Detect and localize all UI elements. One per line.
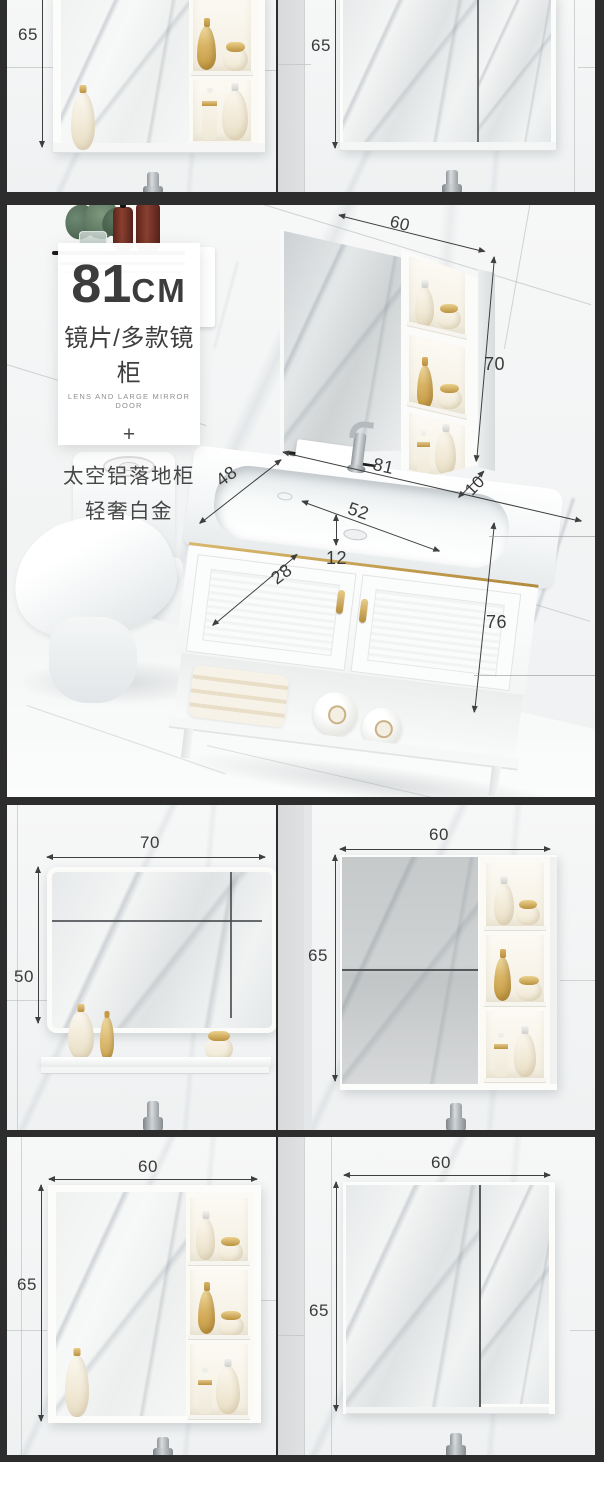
dim-label-counter-width: 81 <box>371 455 396 477</box>
cell-content <box>409 419 465 477</box>
cabinet-bottom-edge <box>340 142 556 151</box>
wall-tile-band <box>278 805 304 1130</box>
card-size-unit: CM <box>131 272 186 309</box>
vanity-leg <box>488 766 501 797</box>
shelf-cell <box>190 1198 248 1262</box>
dim-line-width <box>49 1179 257 1180</box>
tile-line <box>331 1137 332 1455</box>
cell-content <box>409 341 465 409</box>
photo-top-right-cabinet: 65 <box>278 0 595 192</box>
mirror-cabinet <box>340 855 557 1090</box>
lotion-bottle <box>435 431 456 475</box>
dim-label-width: 60 <box>138 1158 158 1175</box>
shelf-cell <box>190 1270 248 1336</box>
card-size-number: 81 <box>71 254 131 314</box>
gold-lid-jar <box>516 905 540 925</box>
photo-cabinet-open-front: 60 65 <box>7 1137 276 1455</box>
tile-line <box>278 1335 304 1336</box>
gold-vase-bottle <box>198 1290 215 1334</box>
gold-lid-jar <box>437 309 461 329</box>
shelf-column <box>401 249 481 483</box>
dim-label-width: 70 <box>140 834 160 851</box>
card-title-cn: 镜片/多款镜柜 <box>58 318 200 388</box>
dim-line-height <box>335 855 336 1081</box>
dim-label-width: 60 <box>431 1154 451 1171</box>
dim-label-height: 65 <box>18 26 38 43</box>
mirror-door-left <box>346 1185 479 1407</box>
wall-tile-band <box>304 805 312 1130</box>
mirror-cabinet <box>343 1182 555 1414</box>
lotion-bottle <box>216 1366 240 1414</box>
dim-label-height: 65 <box>309 1302 329 1319</box>
dim-label-cabinet-width: 60 <box>388 213 411 234</box>
wall-tile-band <box>278 0 304 192</box>
cabinet-right-edge <box>550 857 557 1084</box>
photo-wall-mirror: 70 50 <box>7 805 276 1130</box>
perfume-bottle <box>68 1011 94 1059</box>
mirror-door <box>284 231 402 453</box>
faucet <box>143 172 163 192</box>
dim-line-height <box>336 1182 337 1411</box>
dim-label-width: 60 <box>429 826 449 843</box>
slim-gold-bottle <box>100 1017 114 1059</box>
gold-lid-jar <box>437 389 462 409</box>
tile-line <box>261 1300 276 1301</box>
gold-lid-jar <box>223 48 248 71</box>
lotion-bottle <box>415 287 434 327</box>
tile-line <box>7 67 53 68</box>
lotion-bottle <box>222 90 248 140</box>
faucet <box>442 170 462 192</box>
card-plus: + <box>58 423 200 447</box>
lotion-bottle <box>514 1033 536 1077</box>
shelf-cell <box>486 863 544 927</box>
info-card: 81CM 镜片/多款镜柜 LENS AND LARGE MIRROR DOOR … <box>58 243 200 445</box>
mirror-reflection-line-v <box>230 872 232 1018</box>
tile-line <box>304 1137 305 1455</box>
dim-line-height <box>38 867 39 1023</box>
faucet <box>143 1101 163 1130</box>
card-subtitle-2: 轻奢白金 <box>58 494 200 524</box>
door-panel <box>202 569 340 656</box>
dim-label-height: 65 <box>311 37 331 54</box>
gold-lid-jar <box>516 981 542 1001</box>
shelf-column <box>189 0 259 143</box>
shelf-column <box>480 857 550 1084</box>
faucet <box>446 1103 466 1130</box>
gold-vase-bottle <box>417 365 433 409</box>
reference-hairline <box>474 675 595 676</box>
toilet-pedestal <box>49 617 137 703</box>
door-panel <box>367 589 505 676</box>
wall-tile-band <box>278 1137 304 1455</box>
door-seam <box>342 969 478 971</box>
card-size: 81CM <box>58 257 200 311</box>
dim-label-stand-height: 76 <box>486 613 507 631</box>
tile-line <box>578 67 595 68</box>
shelf-cell <box>193 80 251 142</box>
tile-line <box>247 205 592 305</box>
floating-shelf <box>41 1057 271 1067</box>
gold-vase-bottle <box>494 957 511 1001</box>
dim-label-basin-depth: 12 <box>326 549 347 567</box>
cell-content <box>409 263 465 329</box>
card-subtitle-1: 太空铝落地柜 <box>58 459 200 489</box>
shelf-cell <box>193 0 251 72</box>
cabinet-left-edge <box>280 229 285 453</box>
pump-bottle <box>198 1372 212 1414</box>
photo-hero-scene: 60 70 10 81 52 12 28 48 76 81CM 镜片/多款镜柜 … <box>7 205 595 797</box>
pump-bottle <box>202 92 217 140</box>
faucet <box>446 1433 466 1455</box>
tile-line <box>504 205 531 349</box>
faucet <box>153 1437 173 1455</box>
shelf-cell <box>409 257 465 336</box>
photo-mirror-cabinet-open: 60 65 <box>278 805 595 1130</box>
mirror-door-left <box>343 0 477 142</box>
double-mirror-cabinet-cropped <box>340 0 556 150</box>
dim-line-basin-depth <box>336 515 337 545</box>
tile-line <box>278 64 311 65</box>
gold-lid-jar <box>218 1316 244 1336</box>
pump-bottle <box>417 435 430 475</box>
tile-line <box>7 1000 47 1001</box>
lotion-bottle <box>196 1218 215 1260</box>
dim-line-height <box>41 1185 42 1421</box>
mirror-door-right <box>481 1185 549 1404</box>
tile-line <box>574 0 575 192</box>
shelf-cell <box>486 1011 544 1079</box>
lotion-bottle <box>494 883 514 925</box>
tile-line <box>560 980 595 981</box>
dim-line-height <box>42 0 43 147</box>
dim-line-width <box>47 857 265 858</box>
shelf-cell <box>486 935 544 1003</box>
cabinet-bottom-edge <box>346 1407 549 1414</box>
dim-line-width <box>344 1175 550 1176</box>
reference-hairline <box>489 536 595 537</box>
mirror-door <box>342 857 478 1084</box>
dim-line-width <box>340 849 550 850</box>
dim-label-height: 50 <box>14 968 34 985</box>
photo-top-left-cabinet: 65 <box>7 0 276 192</box>
mirror-door-right <box>479 0 551 142</box>
bottom-white-strip <box>0 1462 604 1498</box>
shelf-front-lip <box>41 1067 269 1074</box>
vanity-leg <box>181 728 194 759</box>
dim-label-height: 65 <box>17 1276 37 1293</box>
tile-line <box>21 1137 22 1455</box>
faucet-spout <box>349 420 374 441</box>
dim-label-cabinet-height: 70 <box>484 355 505 373</box>
card-title-en: LENS AND LARGE MIRROR DOOR <box>58 392 200 410</box>
product-detail-page: 65 65 <box>0 0 604 1498</box>
shelf-column <box>186 1192 254 1416</box>
shelf-cell <box>409 335 465 416</box>
gold-lid-jar <box>218 1242 243 1262</box>
gold-vase-bottle <box>197 26 216 70</box>
cabinet-door-right <box>351 574 522 691</box>
photo-double-mirror-cabinet: 60 65 <box>278 1137 595 1455</box>
dim-label-height: 65 <box>308 947 328 964</box>
dim-line-height <box>335 0 336 148</box>
pump-bottle <box>494 1037 508 1077</box>
tile-line <box>304 0 305 192</box>
door-seam <box>477 0 479 142</box>
door-seam <box>479 1185 481 1407</box>
shelf-cell <box>190 1344 248 1416</box>
tile-line <box>570 1330 595 1331</box>
